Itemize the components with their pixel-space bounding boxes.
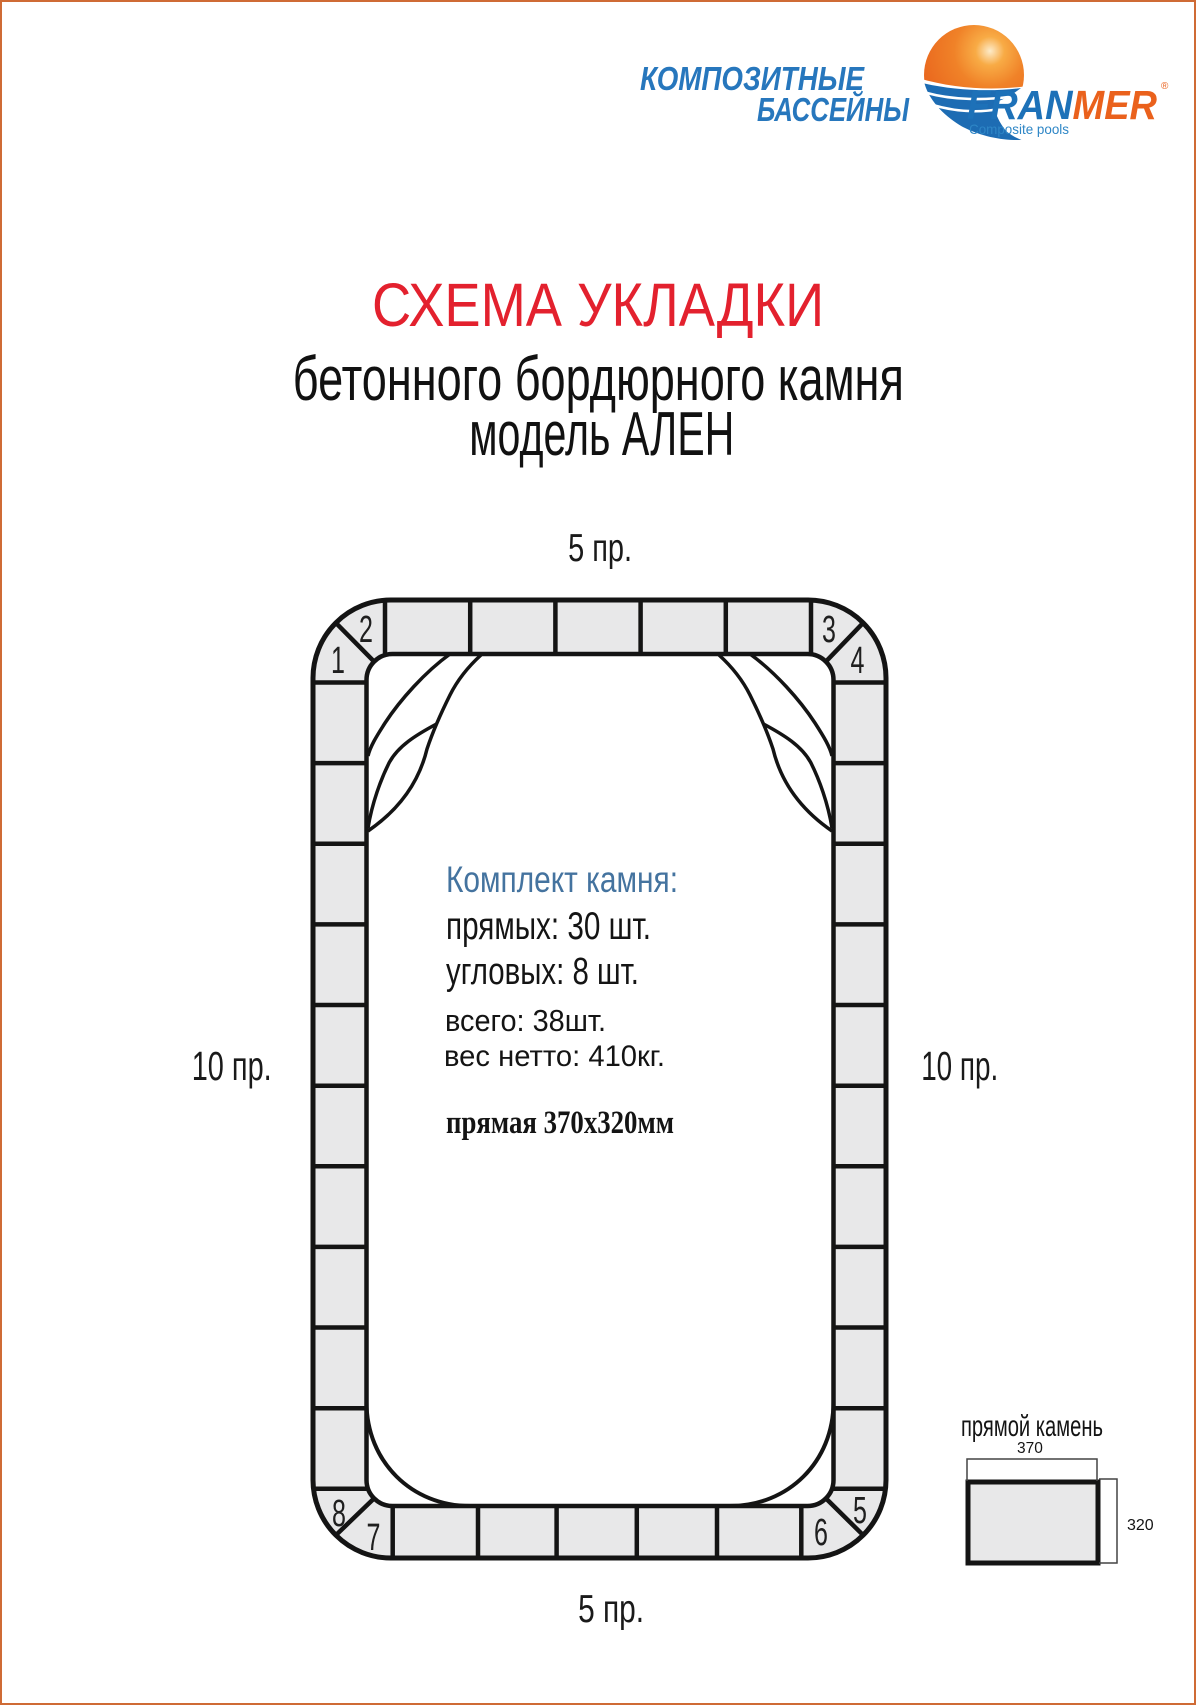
svg-text:2: 2: [359, 608, 373, 650]
svg-text:6: 6: [814, 1511, 828, 1553]
svg-text:4: 4: [851, 639, 865, 681]
svg-text:3: 3: [822, 608, 836, 650]
svg-text:5: 5: [853, 1489, 867, 1531]
svg-text:7: 7: [367, 1516, 381, 1558]
svg-text:8: 8: [332, 1492, 346, 1534]
svg-text:1: 1: [331, 639, 345, 681]
